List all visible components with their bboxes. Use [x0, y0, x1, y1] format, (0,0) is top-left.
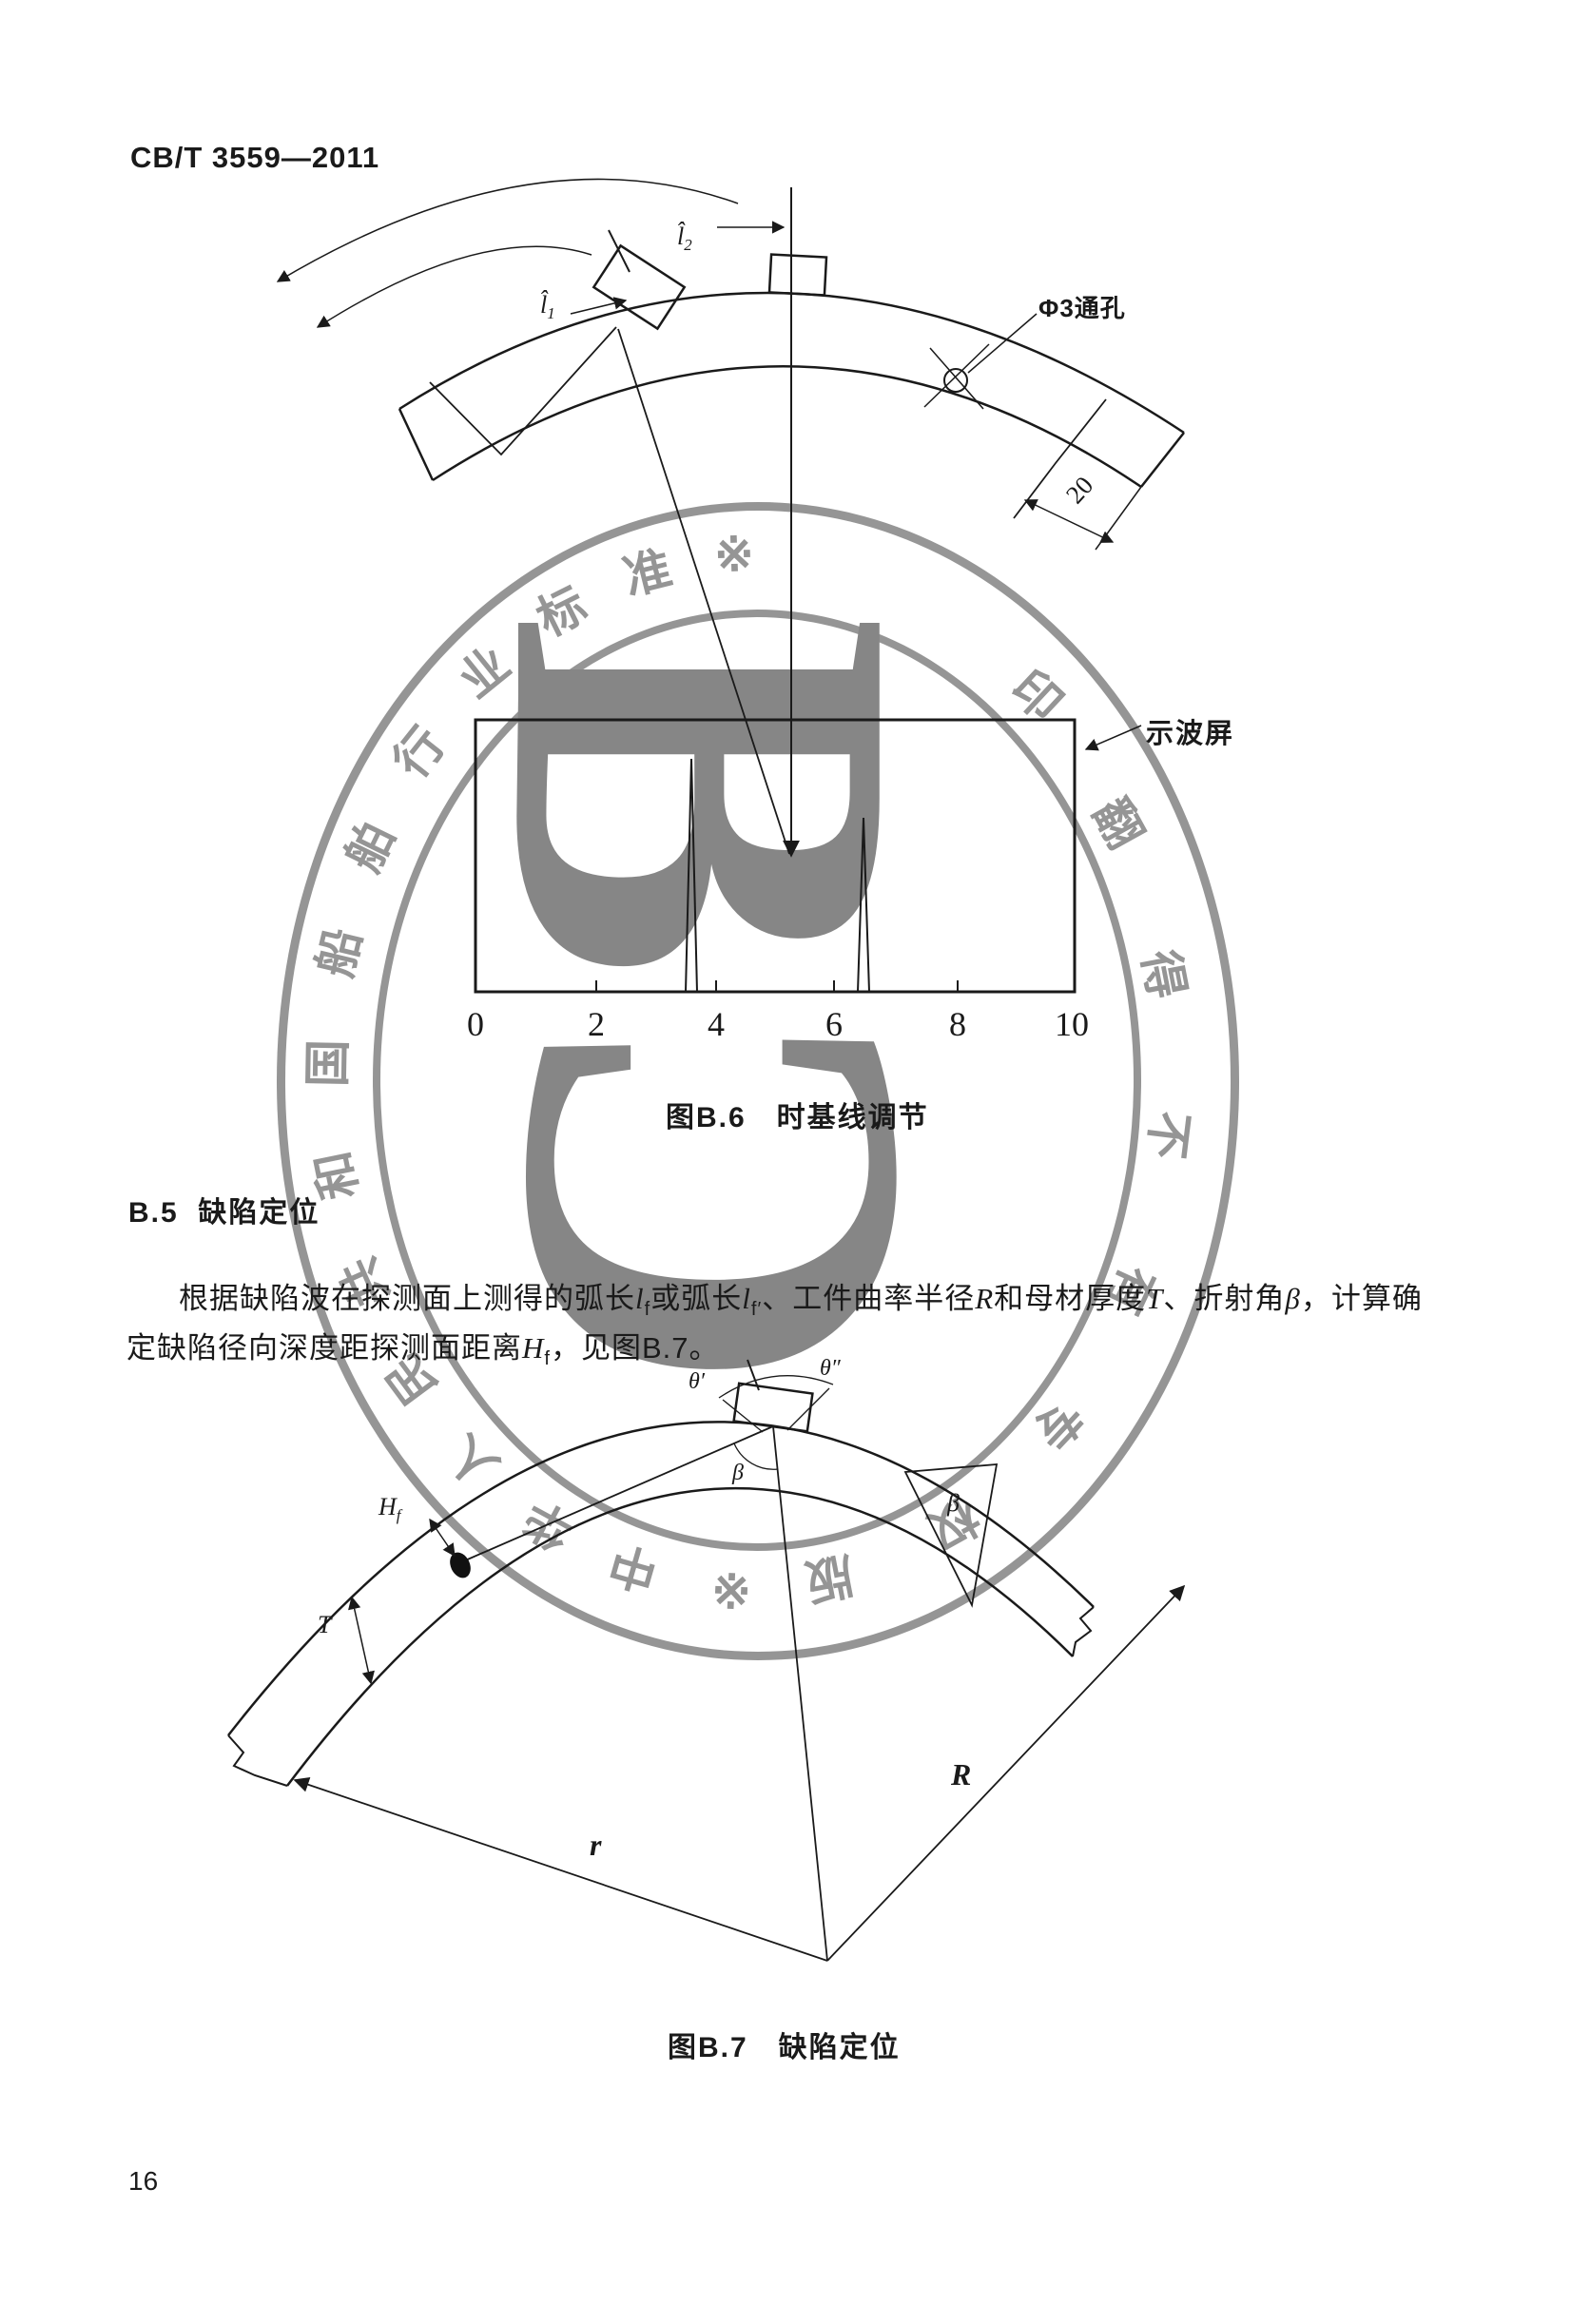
arc-length-l2-label: l̂2: [677, 223, 692, 255]
hole-leader-line: [968, 314, 1037, 373]
block-left-end: [399, 409, 433, 480]
oscilloscope-screen: [475, 720, 1075, 992]
through-hole: [944, 369, 967, 392]
figure-b6-drawing: [0, 0, 1591, 1160]
beta-triangle: [905, 1464, 997, 1605]
right-break-line: [1073, 1607, 1094, 1656]
block-right-end: [1141, 433, 1184, 487]
arc-length-l1-label: l̂1: [540, 291, 555, 323]
outer-radius-label: R: [951, 1757, 971, 1792]
axis-tick-8: 8: [949, 1004, 966, 1044]
block-inner-arc: [433, 366, 1141, 487]
outer-radius-line: [827, 1586, 1184, 1961]
angle-probe: [593, 245, 684, 328]
baseline-ticks: [596, 980, 958, 992]
inner-radius-line: [295, 1780, 827, 1961]
echo-peak-2: [858, 818, 869, 992]
angled-beam-line: [618, 329, 789, 854]
radial-line: [773, 1426, 827, 1961]
defect-depth-label: Hf: [378, 1493, 400, 1525]
straight-probe: [769, 255, 826, 296]
oscilloscope-screen-label: 示波屏: [1146, 711, 1234, 751]
figure-b7-drawing: [0, 1312, 1591, 2035]
axis-tick-6: 6: [825, 1004, 843, 1044]
inner-radius-label: r: [590, 1828, 601, 1863]
reflected-beam: [430, 327, 616, 455]
beam-to-defect: [463, 1426, 773, 1561]
screen-label-leader: [1086, 726, 1141, 749]
axis-tick-10: 10: [1055, 1004, 1089, 1044]
section-b5-heading: B.5 缺陷定位: [128, 1189, 320, 1230]
beta-label-triangle: β: [947, 1489, 960, 1518]
paragraph-line-2: 定缺陷径向深度距探测面距离Hf，见图B.7。: [126, 1324, 720, 1370]
wall-thickness-label: T: [318, 1611, 331, 1639]
figure-b7-caption: 图B.7 缺陷定位: [668, 2024, 901, 2065]
dim-arc-l2: [278, 179, 738, 281]
defect-mark: [446, 1549, 475, 1581]
paragraph-line-1: 根据缺陷波在探测面上测得的弧长lf或弧长lf′、工件曲率半径R和母材厚度T、折射…: [179, 1274, 1423, 1321]
theta-prime-label: θ′: [689, 1369, 705, 1395]
pipe-inner-arc: [287, 1488, 1073, 1786]
beta-label-small: β: [732, 1461, 744, 1486]
echo-peak-1: [686, 759, 697, 992]
scanned-standard-page: 中华人民共和国船舶行业标准版权专有不得翻印※※ B C: [0, 0, 1591, 2324]
through-hole-label: Φ3通孔: [1038, 289, 1126, 324]
pipe-outer-arc: [228, 1422, 1094, 1735]
axis-tick-4: 4: [708, 1004, 725, 1044]
theta-double-prime-label: θ″: [820, 1356, 841, 1382]
axis-tick-0: 0: [467, 1004, 484, 1044]
figure-b6-caption: 图B.6 时基线调节: [666, 1094, 929, 1135]
axis-tick-2: 2: [588, 1004, 605, 1044]
left-break-line: [228, 1735, 287, 1786]
